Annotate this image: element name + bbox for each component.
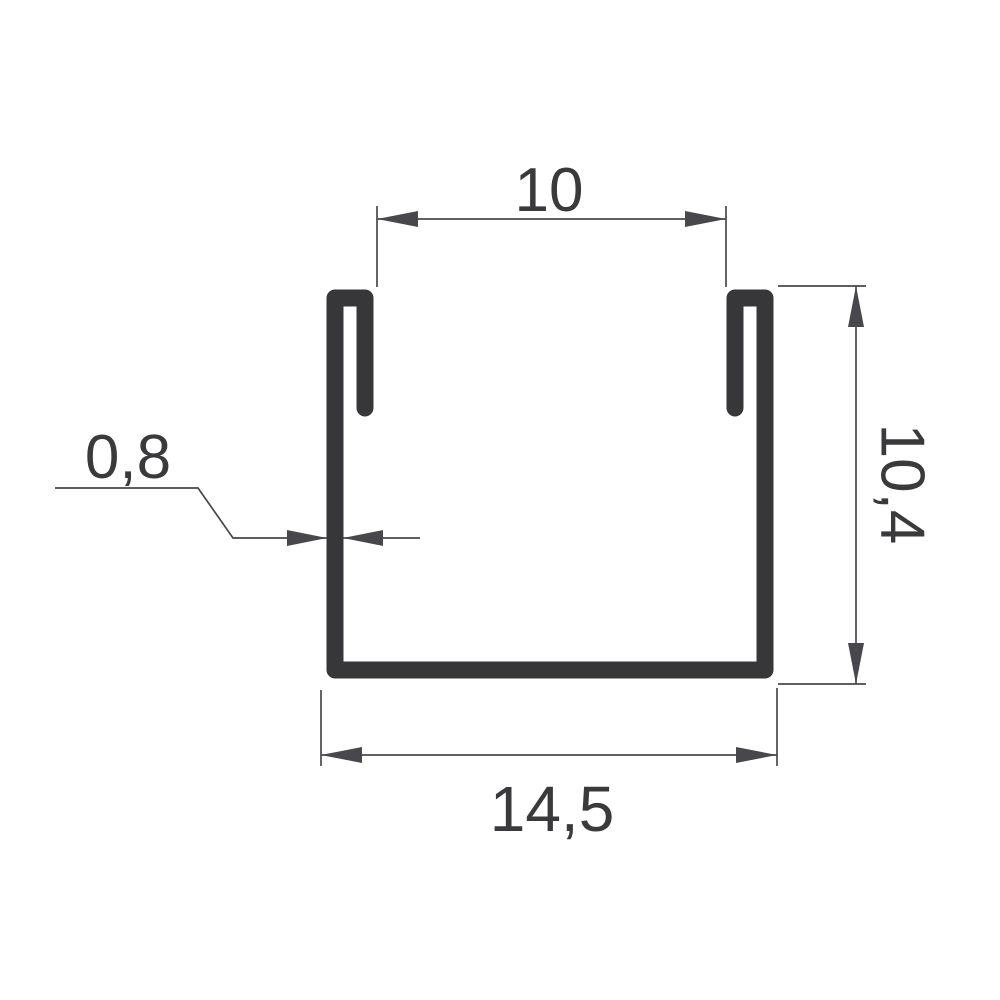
- arrowhead-left-icon: [377, 211, 418, 227]
- arrowhead-up-icon: [848, 286, 864, 327]
- arrowhead-left-icon: [343, 530, 383, 546]
- arrowhead-left-icon: [321, 747, 362, 763]
- dimension-label-inner-width: 10: [515, 156, 584, 225]
- dimension-outer-width: 14,5: [321, 688, 777, 845]
- technical-drawing-canvas: 10 10,4 14,5 0,8: [0, 0, 1000, 1000]
- dimension-label-outer-width: 14,5: [490, 773, 615, 845]
- dimension-label-height: 10,4: [868, 424, 937, 545]
- arrowhead-down-icon: [848, 643, 864, 684]
- arrowhead-right-icon: [736, 747, 777, 763]
- dimension-inner-width: 10: [377, 156, 726, 287]
- dimension-thickness: 0,8: [55, 423, 420, 546]
- u-channel-profile-drawing: 10 10,4 14,5 0,8: [0, 0, 1000, 1000]
- dimension-height: 10,4: [778, 286, 937, 684]
- u-channel-profile-outline: [335, 298, 765, 670]
- arrowhead-right-icon: [287, 530, 327, 546]
- arrowhead-right-icon: [685, 211, 726, 227]
- leader-line: [55, 488, 327, 538]
- dimension-label-thickness: 0,8: [85, 423, 171, 492]
